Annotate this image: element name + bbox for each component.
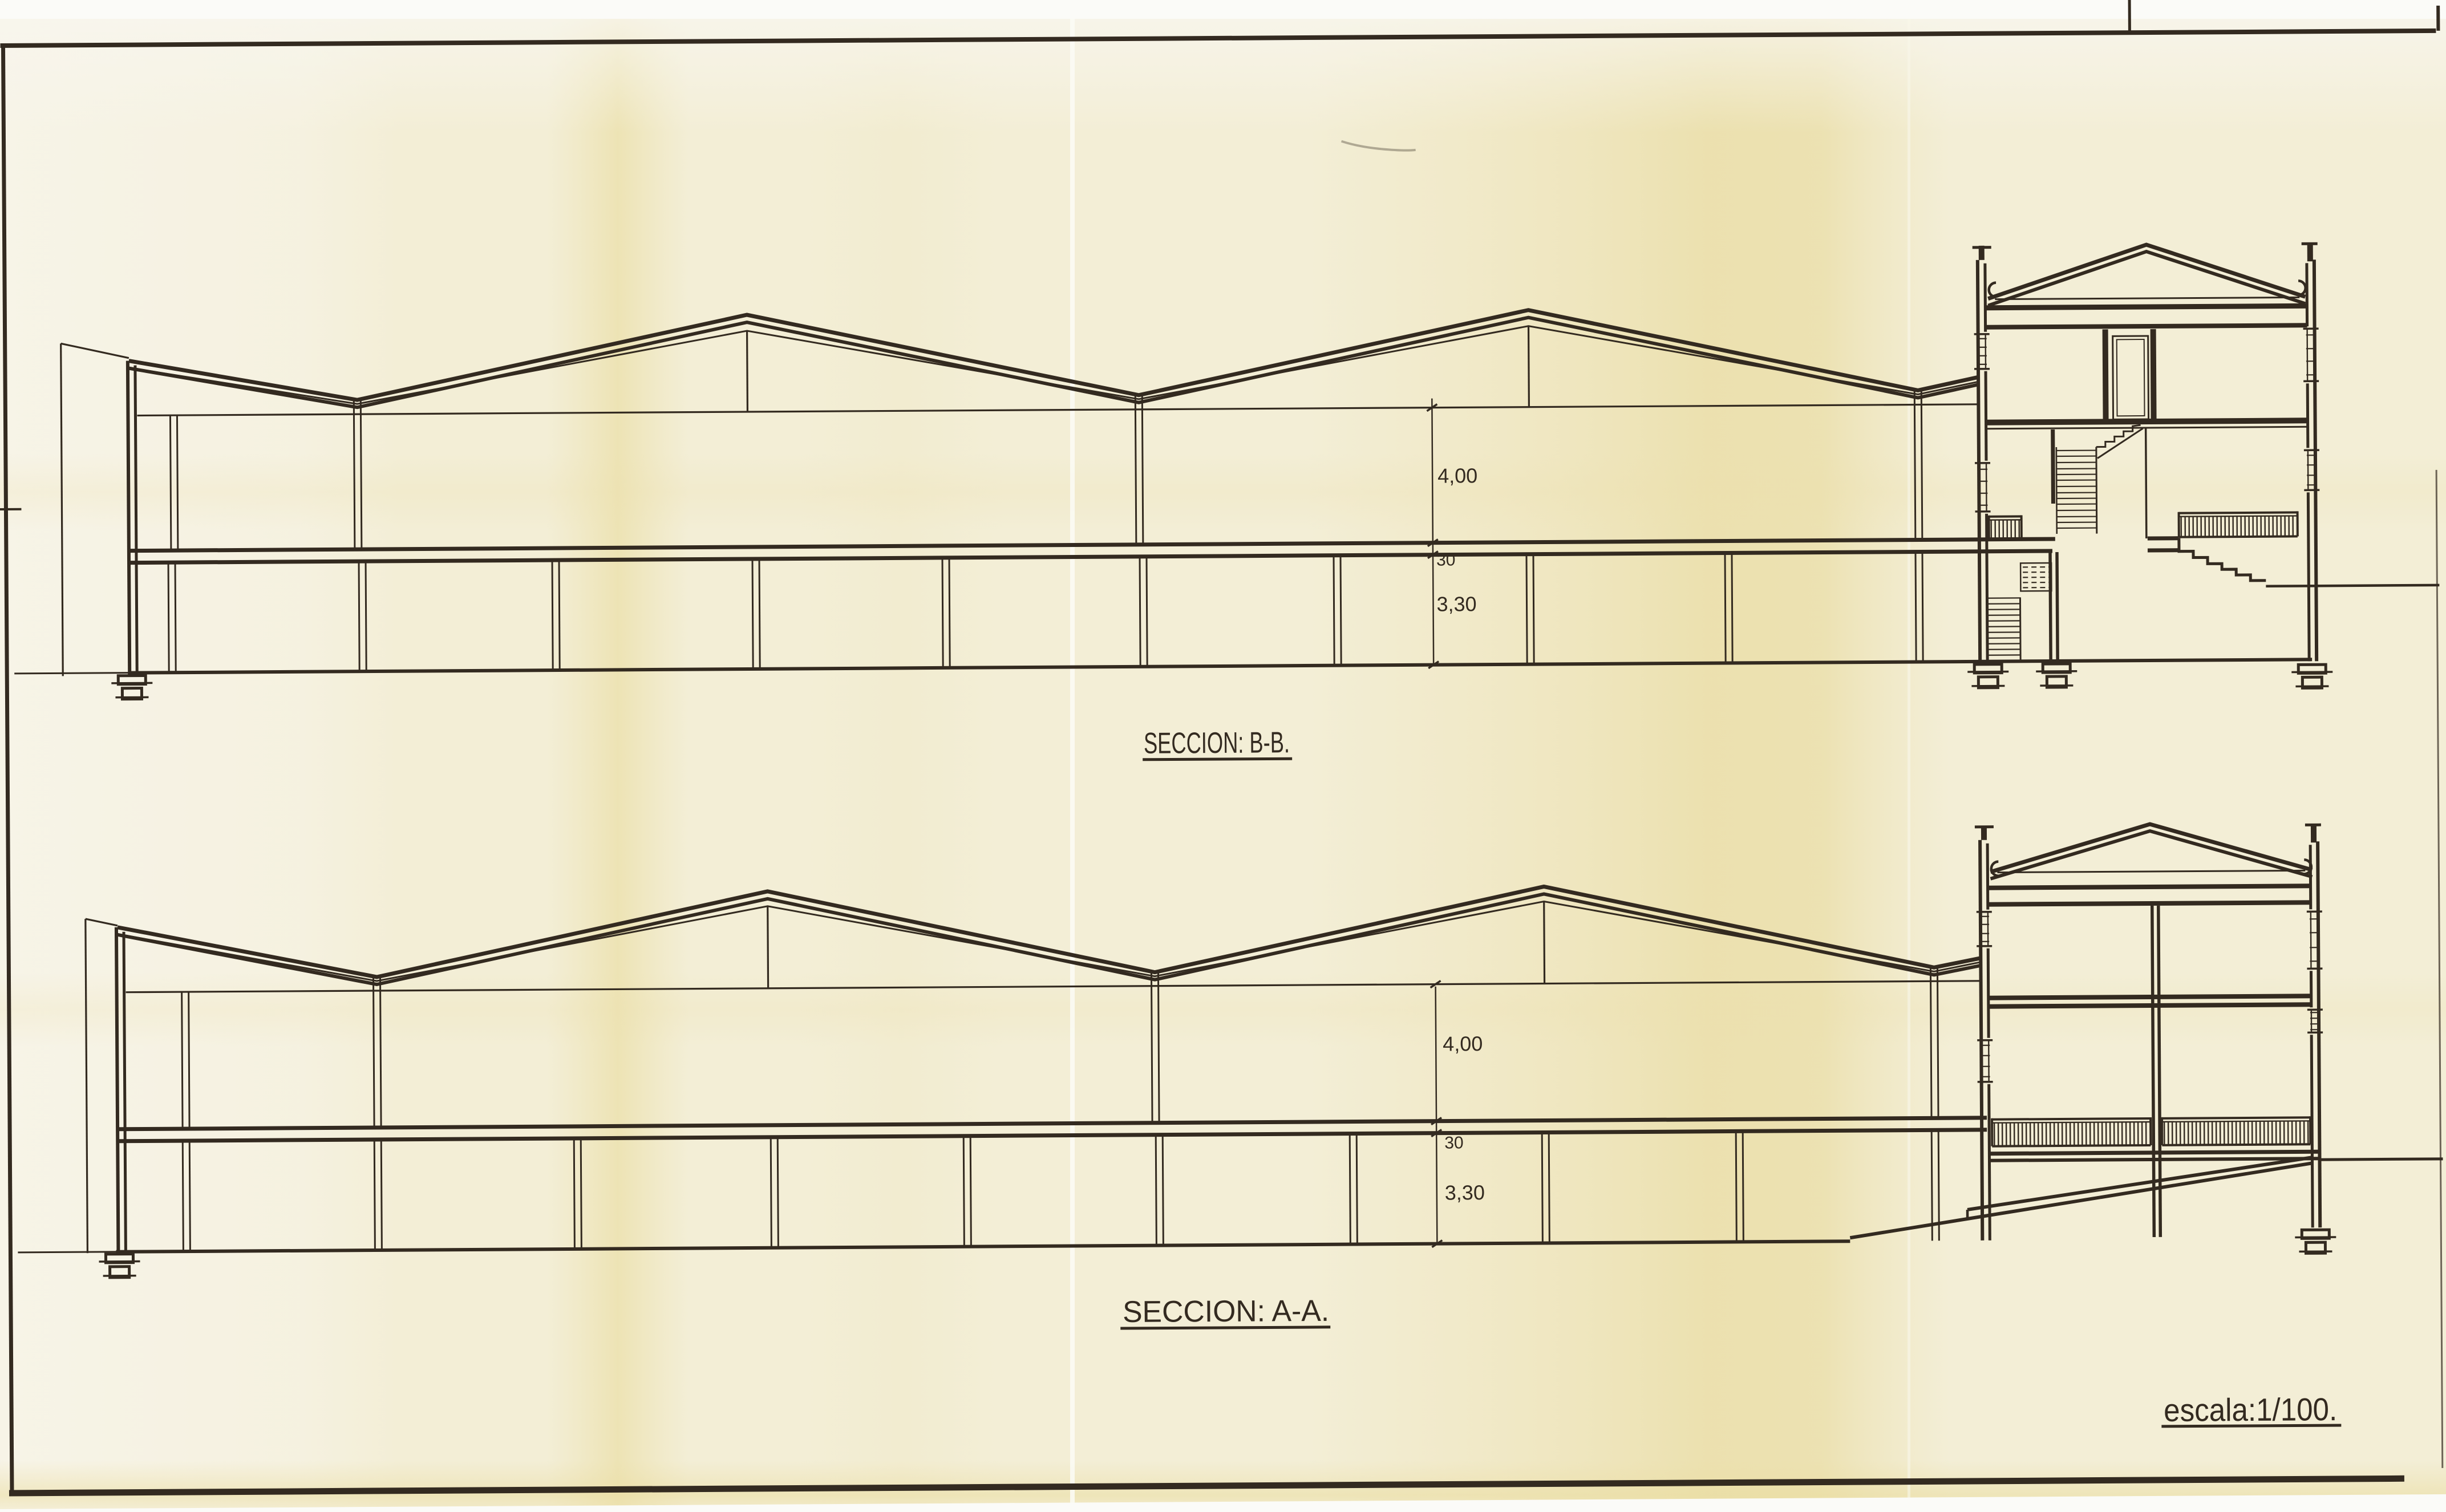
svg-text:3,30: 3,30	[1445, 1181, 1485, 1204]
svg-text:SECCION: A-A.: SECCION: A-A.	[1123, 1294, 1329, 1329]
svg-text:30: 30	[1444, 1133, 1464, 1152]
svg-text:4,00: 4,00	[1443, 1032, 1483, 1055]
svg-text:SECCION: B-B.: SECCION: B-B.	[1144, 726, 1290, 760]
svg-text:30: 30	[1436, 550, 1456, 569]
svg-text:4,00: 4,00	[1437, 464, 1477, 487]
svg-text:escala:1/100.: escala:1/100.	[2164, 1391, 2337, 1428]
svg-text:3,30: 3,30	[1436, 592, 1476, 615]
